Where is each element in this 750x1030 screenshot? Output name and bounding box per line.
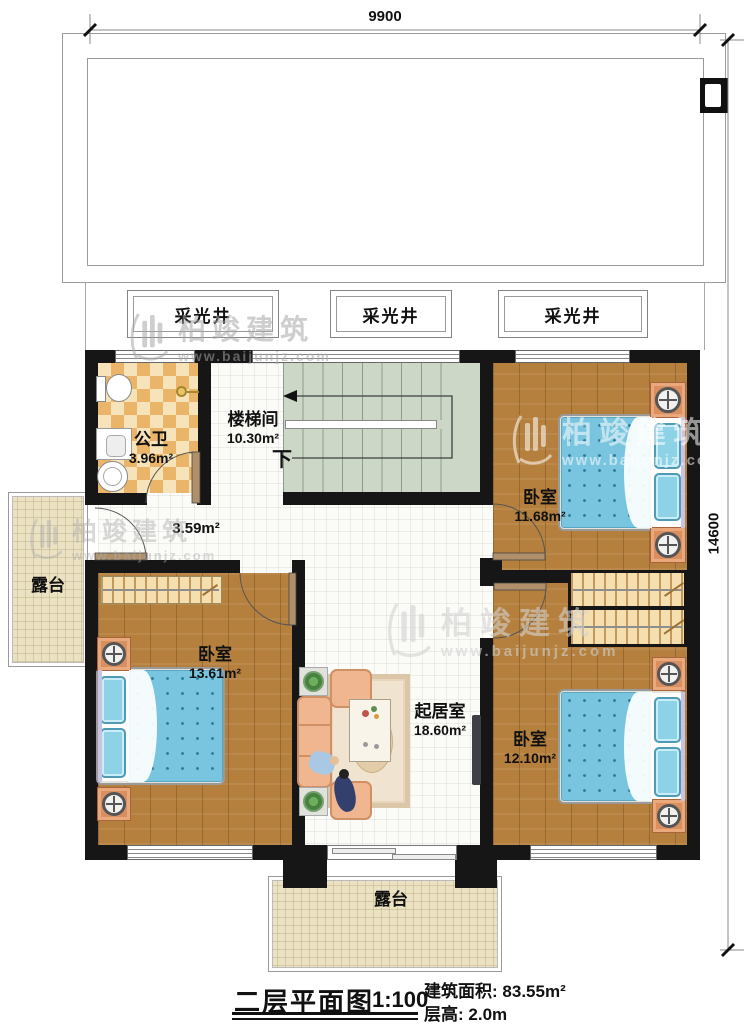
skylight-label: 采光井 bbox=[133, 296, 273, 332]
roof-edge-line bbox=[85, 283, 86, 350]
toilet-tank bbox=[96, 376, 106, 402]
lamp-icon bbox=[102, 642, 126, 666]
bed-blanket-fold bbox=[624, 692, 652, 801]
wall-segment bbox=[85, 845, 127, 860]
wardrobe-block bbox=[568, 570, 687, 647]
wall-segment bbox=[460, 350, 515, 363]
nightstand bbox=[97, 637, 131, 671]
wall-segment bbox=[687, 350, 700, 860]
shower-arm bbox=[187, 391, 199, 393]
nightstand bbox=[97, 787, 131, 821]
wall-segment bbox=[197, 493, 211, 505]
wall-segment bbox=[502, 570, 568, 583]
pillow bbox=[654, 697, 681, 743]
plant-icon bbox=[303, 671, 324, 692]
chimney-flue bbox=[705, 84, 721, 107]
terrace-label: 露台 bbox=[341, 890, 441, 910]
window bbox=[115, 350, 195, 363]
stair-treads-lower bbox=[283, 429, 460, 492]
wardrobe bbox=[100, 576, 222, 604]
pillow bbox=[654, 423, 681, 469]
dimension-height: 14600 bbox=[706, 504, 723, 564]
lamp-icon bbox=[655, 387, 681, 413]
living-room-label: 起居室 18.60m² bbox=[390, 702, 490, 739]
window bbox=[252, 350, 460, 363]
dimension-width: 9900 bbox=[340, 8, 430, 25]
person-head bbox=[330, 756, 339, 765]
pillow bbox=[654, 473, 681, 521]
wardrobe bbox=[571, 573, 684, 606]
floor-height: 层高: 2.0m bbox=[424, 1000, 507, 1025]
wall-segment bbox=[98, 493, 147, 505]
skylight-box: 采光井 bbox=[127, 290, 279, 338]
terrace-wall-stub bbox=[283, 860, 327, 888]
plant-icon bbox=[303, 791, 324, 812]
bed-blanket-fold bbox=[624, 417, 652, 528]
building-area: 建筑面积: 83.55m² bbox=[424, 977, 566, 1002]
pillow bbox=[100, 676, 126, 724]
side-table bbox=[299, 667, 328, 696]
bathroom-label: 公卫 3.96m² bbox=[111, 430, 191, 467]
window bbox=[127, 845, 253, 860]
shower-head bbox=[176, 386, 187, 397]
bedroom-label: 卧室 13.61m² bbox=[165, 645, 265, 682]
bedroom-label: 卧室 11.68m² bbox=[490, 488, 590, 525]
wall-segment bbox=[480, 558, 502, 586]
stair-rail bbox=[285, 420, 437, 429]
title-underline bbox=[232, 1018, 418, 1020]
lamp-icon bbox=[657, 662, 681, 686]
wall-segment bbox=[657, 845, 700, 860]
terrace-label: 露台 bbox=[8, 576, 88, 596]
nightstand bbox=[650, 527, 686, 563]
wall-segment bbox=[98, 560, 240, 573]
dimension-tick bbox=[722, 944, 734, 956]
lamp-icon bbox=[657, 804, 681, 828]
window bbox=[530, 845, 657, 860]
skylight-box: 采光井 bbox=[330, 290, 452, 338]
skylight-label: 采光井 bbox=[504, 296, 642, 332]
window bbox=[515, 350, 630, 363]
skylight-box: 采光井 bbox=[498, 290, 648, 338]
headboard bbox=[681, 692, 685, 801]
wall-segment bbox=[195, 350, 252, 363]
nightstand bbox=[652, 799, 686, 833]
wall-segment bbox=[457, 845, 530, 860]
headboard bbox=[681, 417, 685, 528]
terrace-wall-stub bbox=[455, 860, 497, 888]
toilet-bowl bbox=[106, 374, 132, 402]
bed-blanket-fold bbox=[129, 670, 157, 782]
roof-outline-inner bbox=[87, 58, 704, 266]
plan-scale: 1:100 bbox=[372, 987, 428, 1013]
title-underline bbox=[232, 1012, 418, 1015]
hallway-area-label: 3.59m² bbox=[156, 520, 236, 538]
pillow bbox=[654, 747, 681, 797]
stairwell-label: 楼梯间 10.30m² bbox=[203, 410, 303, 447]
pillow bbox=[100, 728, 126, 778]
nightstand bbox=[652, 657, 686, 691]
stair-treads-upper bbox=[283, 363, 460, 420]
wall-segment bbox=[283, 492, 493, 505]
headboard bbox=[98, 670, 102, 782]
coffee-table bbox=[349, 699, 391, 762]
wardrobe bbox=[571, 610, 684, 644]
bedroom-label: 卧室 12.10m² bbox=[480, 730, 580, 767]
lamp-icon bbox=[102, 792, 126, 816]
nightstand bbox=[650, 382, 686, 418]
sliding-door bbox=[327, 845, 457, 860]
wall-segment bbox=[292, 560, 305, 573]
person-head bbox=[339, 769, 349, 779]
lamp-icon bbox=[655, 532, 681, 558]
wall-segment bbox=[253, 845, 327, 860]
wall-segment bbox=[480, 363, 493, 505]
skylight-label: 采光井 bbox=[336, 296, 446, 332]
side-table bbox=[299, 787, 328, 816]
roof-edge-line bbox=[704, 283, 705, 350]
floor-plan: 9900 14600 采光井 采光井 采光井 bbox=[0, 0, 750, 1030]
stair-down-label: 下 bbox=[269, 448, 295, 472]
